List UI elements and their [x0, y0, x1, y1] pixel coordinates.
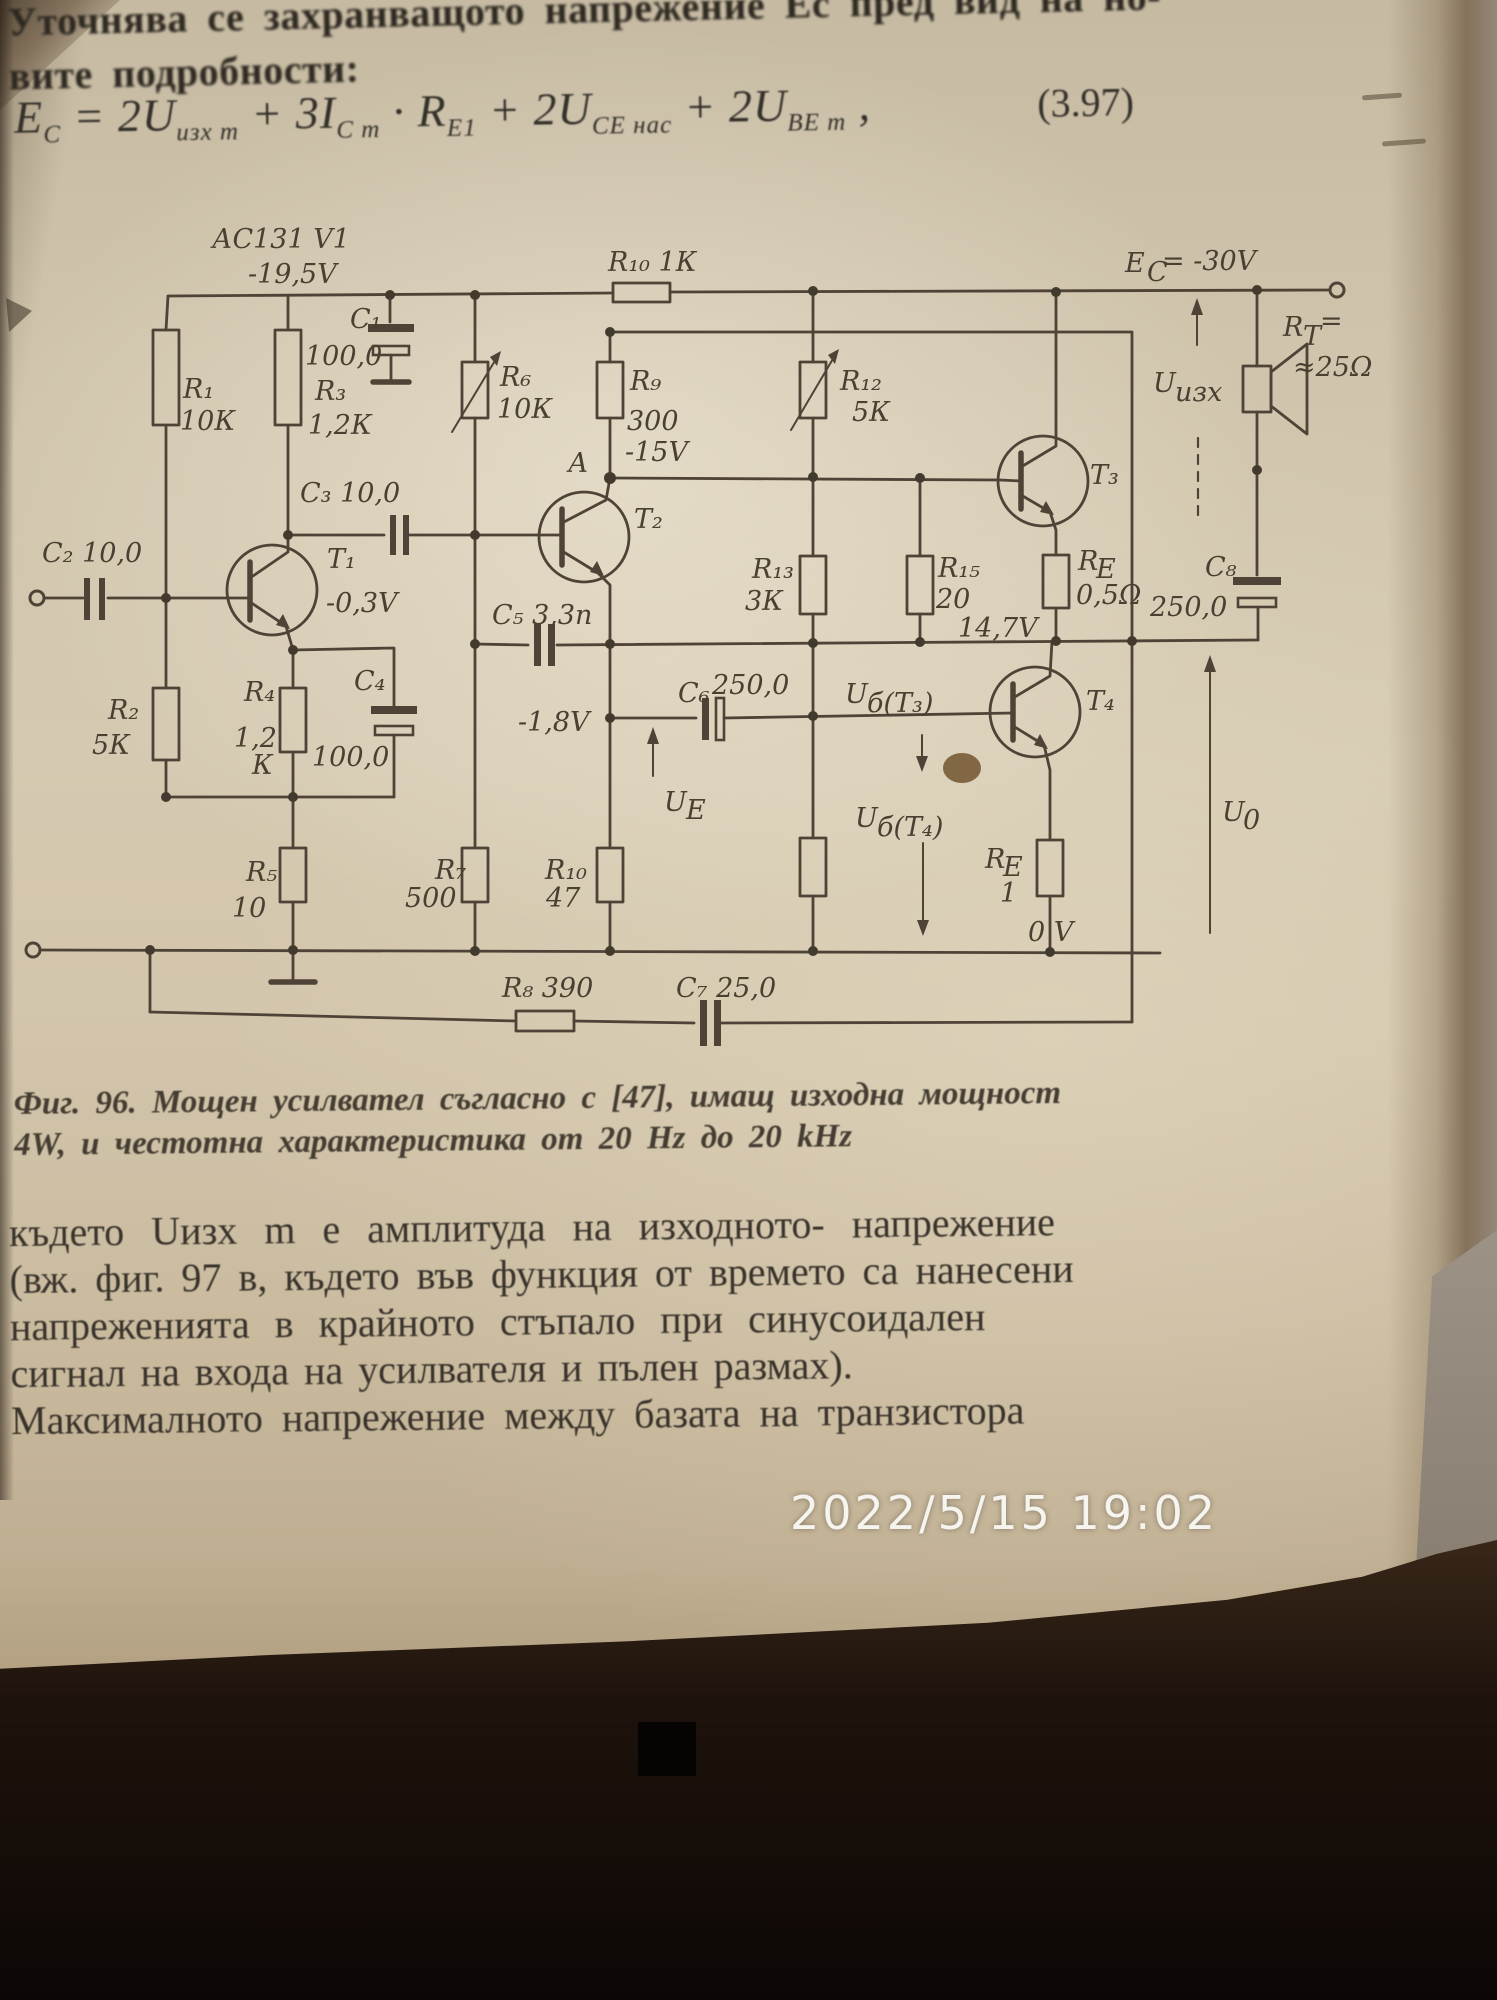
label-rt-eq: = — [1320, 306, 1343, 337]
book-page-photo: Уточнява се захранващото напрежение Ес п… — [0, 0, 1497, 2000]
label-r13-value: 3К — [745, 586, 784, 617]
label-transistor-type: АС131 V1 — [210, 224, 350, 255]
label-r13: R₁₃ — [751, 554, 794, 585]
resistor-r5-symbol — [280, 848, 306, 902]
label-c1: C₁ — [350, 304, 381, 335]
label-r2-value: 5К — [92, 730, 131, 761]
resistor-r8-symbol — [516, 1011, 574, 1031]
label-bias-18: -1,8V — [518, 707, 592, 738]
label-ue-sub: Е — [685, 795, 706, 826]
resistor-r2-symbol — [153, 688, 179, 760]
supply-terminal — [1330, 283, 1344, 297]
label-r1: R₁ — [182, 374, 214, 405]
label-r9-value: 300 — [627, 406, 679, 437]
label-ub4: U — [855, 803, 879, 834]
capacitor-c2-symbol — [84, 578, 90, 620]
label-r6: R₆ — [499, 362, 531, 393]
dark-object — [638, 1722, 696, 1776]
resistor-r10-bottom-symbol — [597, 848, 623, 902]
label-r4: R₄ — [243, 677, 275, 708]
capacitor-c3-symbol — [390, 515, 396, 555]
label-c4-value: 100,0 — [312, 742, 389, 773]
label-r8: R₈ 390 — [501, 973, 593, 1004]
label-ub3: U — [845, 679, 869, 710]
label-r7: R₇ — [434, 855, 466, 886]
label-uout: U — [1153, 368, 1177, 399]
label-re-top-value: 0,5Ω — [1076, 580, 1141, 611]
resistor-r10-top-symbol — [613, 283, 670, 302]
input-terminal — [30, 591, 44, 605]
resistor-r14-symbol — [800, 838, 826, 896]
capacitor-c7-symbol — [700, 1000, 707, 1046]
label-rt: R — [1282, 312, 1303, 343]
label-c2: C₂ 10,0 — [42, 538, 142, 569]
label-c8-value: 250,0 — [1149, 592, 1227, 623]
label-r10-bottom-value: 47 — [545, 883, 581, 914]
label-bias-147: 14,7V — [958, 613, 1040, 644]
label-ue: U — [664, 787, 688, 818]
label-ub4-sub: б(Т₄) — [877, 812, 943, 843]
resistor-r13-symbol — [800, 556, 826, 614]
label-c5: C₅ 3,3n — [492, 600, 592, 631]
resistor-r15-symbol — [907, 556, 933, 614]
label-r12: R₁₂ — [839, 366, 882, 397]
label-r10-top: R₁₀ 1К — [607, 247, 698, 278]
label-r15-value: 20 — [935, 584, 970, 615]
label-c6: C₆ — [678, 678, 710, 709]
label-ec-value: = -30V — [1162, 246, 1259, 277]
label-r3: R₃ — [314, 376, 346, 407]
label-r5: R₅ — [245, 857, 277, 888]
body-paragraph: където Uизх m е амплитуда на изходното- … — [9, 1197, 1171, 1444]
label-r4-unit: К — [251, 750, 274, 781]
label-rt-value: ≈25Ω — [1293, 352, 1372, 383]
label-r9-bias: -15V — [625, 437, 690, 468]
label-t1: Т₁ — [327, 544, 356, 575]
label-t3: Т₃ — [1090, 460, 1119, 491]
label-c6-value: 250,0 — [711, 670, 789, 701]
transistor-t3 — [998, 292, 1088, 641]
figure-caption: Фиг. 96. Мощен усилвател съгласно с [47]… — [14, 1072, 1155, 1166]
label-c1-value: 100,0 — [305, 341, 382, 372]
label-r7-value: 500 — [405, 883, 457, 914]
feedback-line — [150, 950, 1132, 1046]
label-r10-bottom: R₁₀ — [544, 855, 587, 886]
bias-chain — [791, 291, 933, 643]
ground-terminal — [26, 943, 40, 957]
resistor-re-bottom-symbol — [1037, 840, 1063, 896]
resistor-re-top-symbol — [1043, 555, 1069, 608]
driver-base-line — [610, 478, 1000, 480]
speaker-icon — [1243, 366, 1271, 412]
label-r12-value: 5К — [852, 397, 891, 428]
resistor-r4-symbol — [280, 688, 306, 752]
label-r3-value: 1,2К — [308, 410, 373, 441]
base-drive-line — [597, 643, 1013, 951]
label-c4: C₄ — [354, 666, 385, 697]
label-r5-value: 10 — [232, 893, 266, 924]
label-c7: C₇ 25,0 — [676, 973, 776, 1004]
capacitor-c8-symbol — [1233, 577, 1281, 585]
resistor-r1-symbol — [153, 330, 179, 425]
label-r1-value: 10К — [180, 406, 236, 437]
label-r9: R₉ — [629, 366, 661, 397]
label-c8: C₈ — [1205, 552, 1237, 583]
label-t4: Т₄ — [1086, 686, 1115, 717]
label-ub3-sub: б(Т₃) — [867, 688, 933, 719]
label-r15: R₁₅ — [937, 553, 980, 584]
label-t1-bias: -0,3V — [326, 588, 400, 619]
label-node-a: А — [566, 448, 588, 479]
label-re-bottom-value: 1 — [1000, 878, 1017, 909]
emitter-network-t1 — [280, 648, 417, 950]
label-supply-t1: -19,5V — [248, 259, 339, 290]
camera-timestamp: 2022/5/15 19:02 — [790, 1486, 1218, 1540]
label-ground-0v: 0 V — [1028, 917, 1076, 948]
label-t2: Т₂ — [634, 504, 663, 535]
label-u0-sub: 0 — [1243, 805, 1260, 836]
label-r6-value: 10К — [497, 394, 553, 425]
resistor-r9-symbol — [597, 362, 623, 418]
label-c3: C₃ 10,0 — [300, 478, 400, 509]
ink-stain — [943, 753, 981, 783]
label-ec: Е — [1124, 248, 1145, 279]
label-r2: R₂ — [107, 695, 139, 726]
capacitor-c4-symbol — [371, 706, 417, 714]
resistor-r3-symbol — [275, 330, 301, 425]
label-uout-sub: изх — [1175, 377, 1222, 408]
junction-dots — [145, 285, 1262, 957]
